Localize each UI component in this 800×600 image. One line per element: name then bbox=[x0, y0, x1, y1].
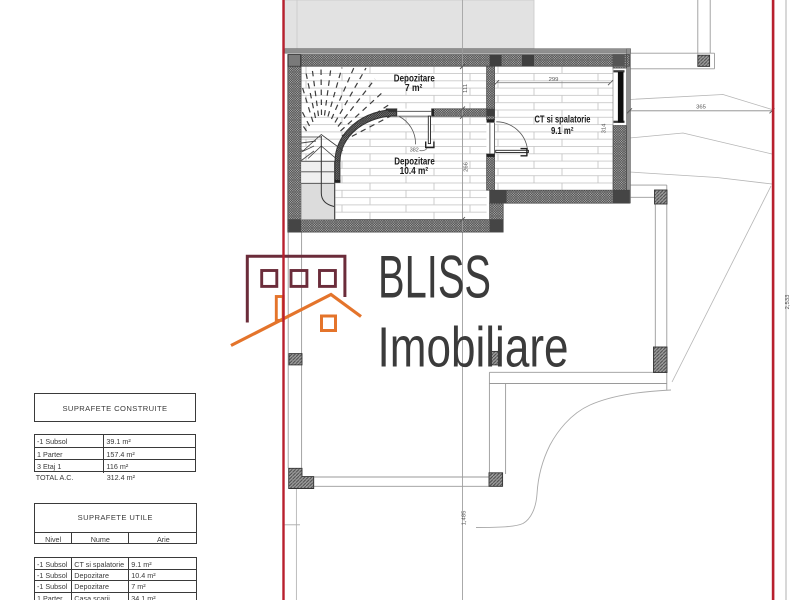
svg-text:266: 266 bbox=[464, 161, 470, 172]
svg-text:CT si spalatorie: CT si spalatorie bbox=[535, 115, 591, 126]
svg-text:365: 365 bbox=[696, 105, 707, 111]
svg-text:382: 382 bbox=[410, 148, 419, 154]
svg-text:BLISS: BLISS bbox=[378, 244, 491, 311]
svg-text:7 m²: 7 m² bbox=[405, 83, 423, 94]
svg-text:299: 299 bbox=[549, 77, 559, 83]
svg-text:10.4 m²: 10.4 m² bbox=[400, 166, 429, 177]
svg-text:Imobiliare: Imobiliare bbox=[378, 316, 569, 380]
svg-text:314: 314 bbox=[602, 123, 608, 134]
svg-text:9.1 m²: 9.1 m² bbox=[551, 126, 574, 137]
svg-text:1,485: 1,485 bbox=[462, 510, 468, 525]
svg-text:2,533: 2,533 bbox=[785, 294, 791, 309]
svg-text:111: 111 bbox=[463, 84, 469, 93]
